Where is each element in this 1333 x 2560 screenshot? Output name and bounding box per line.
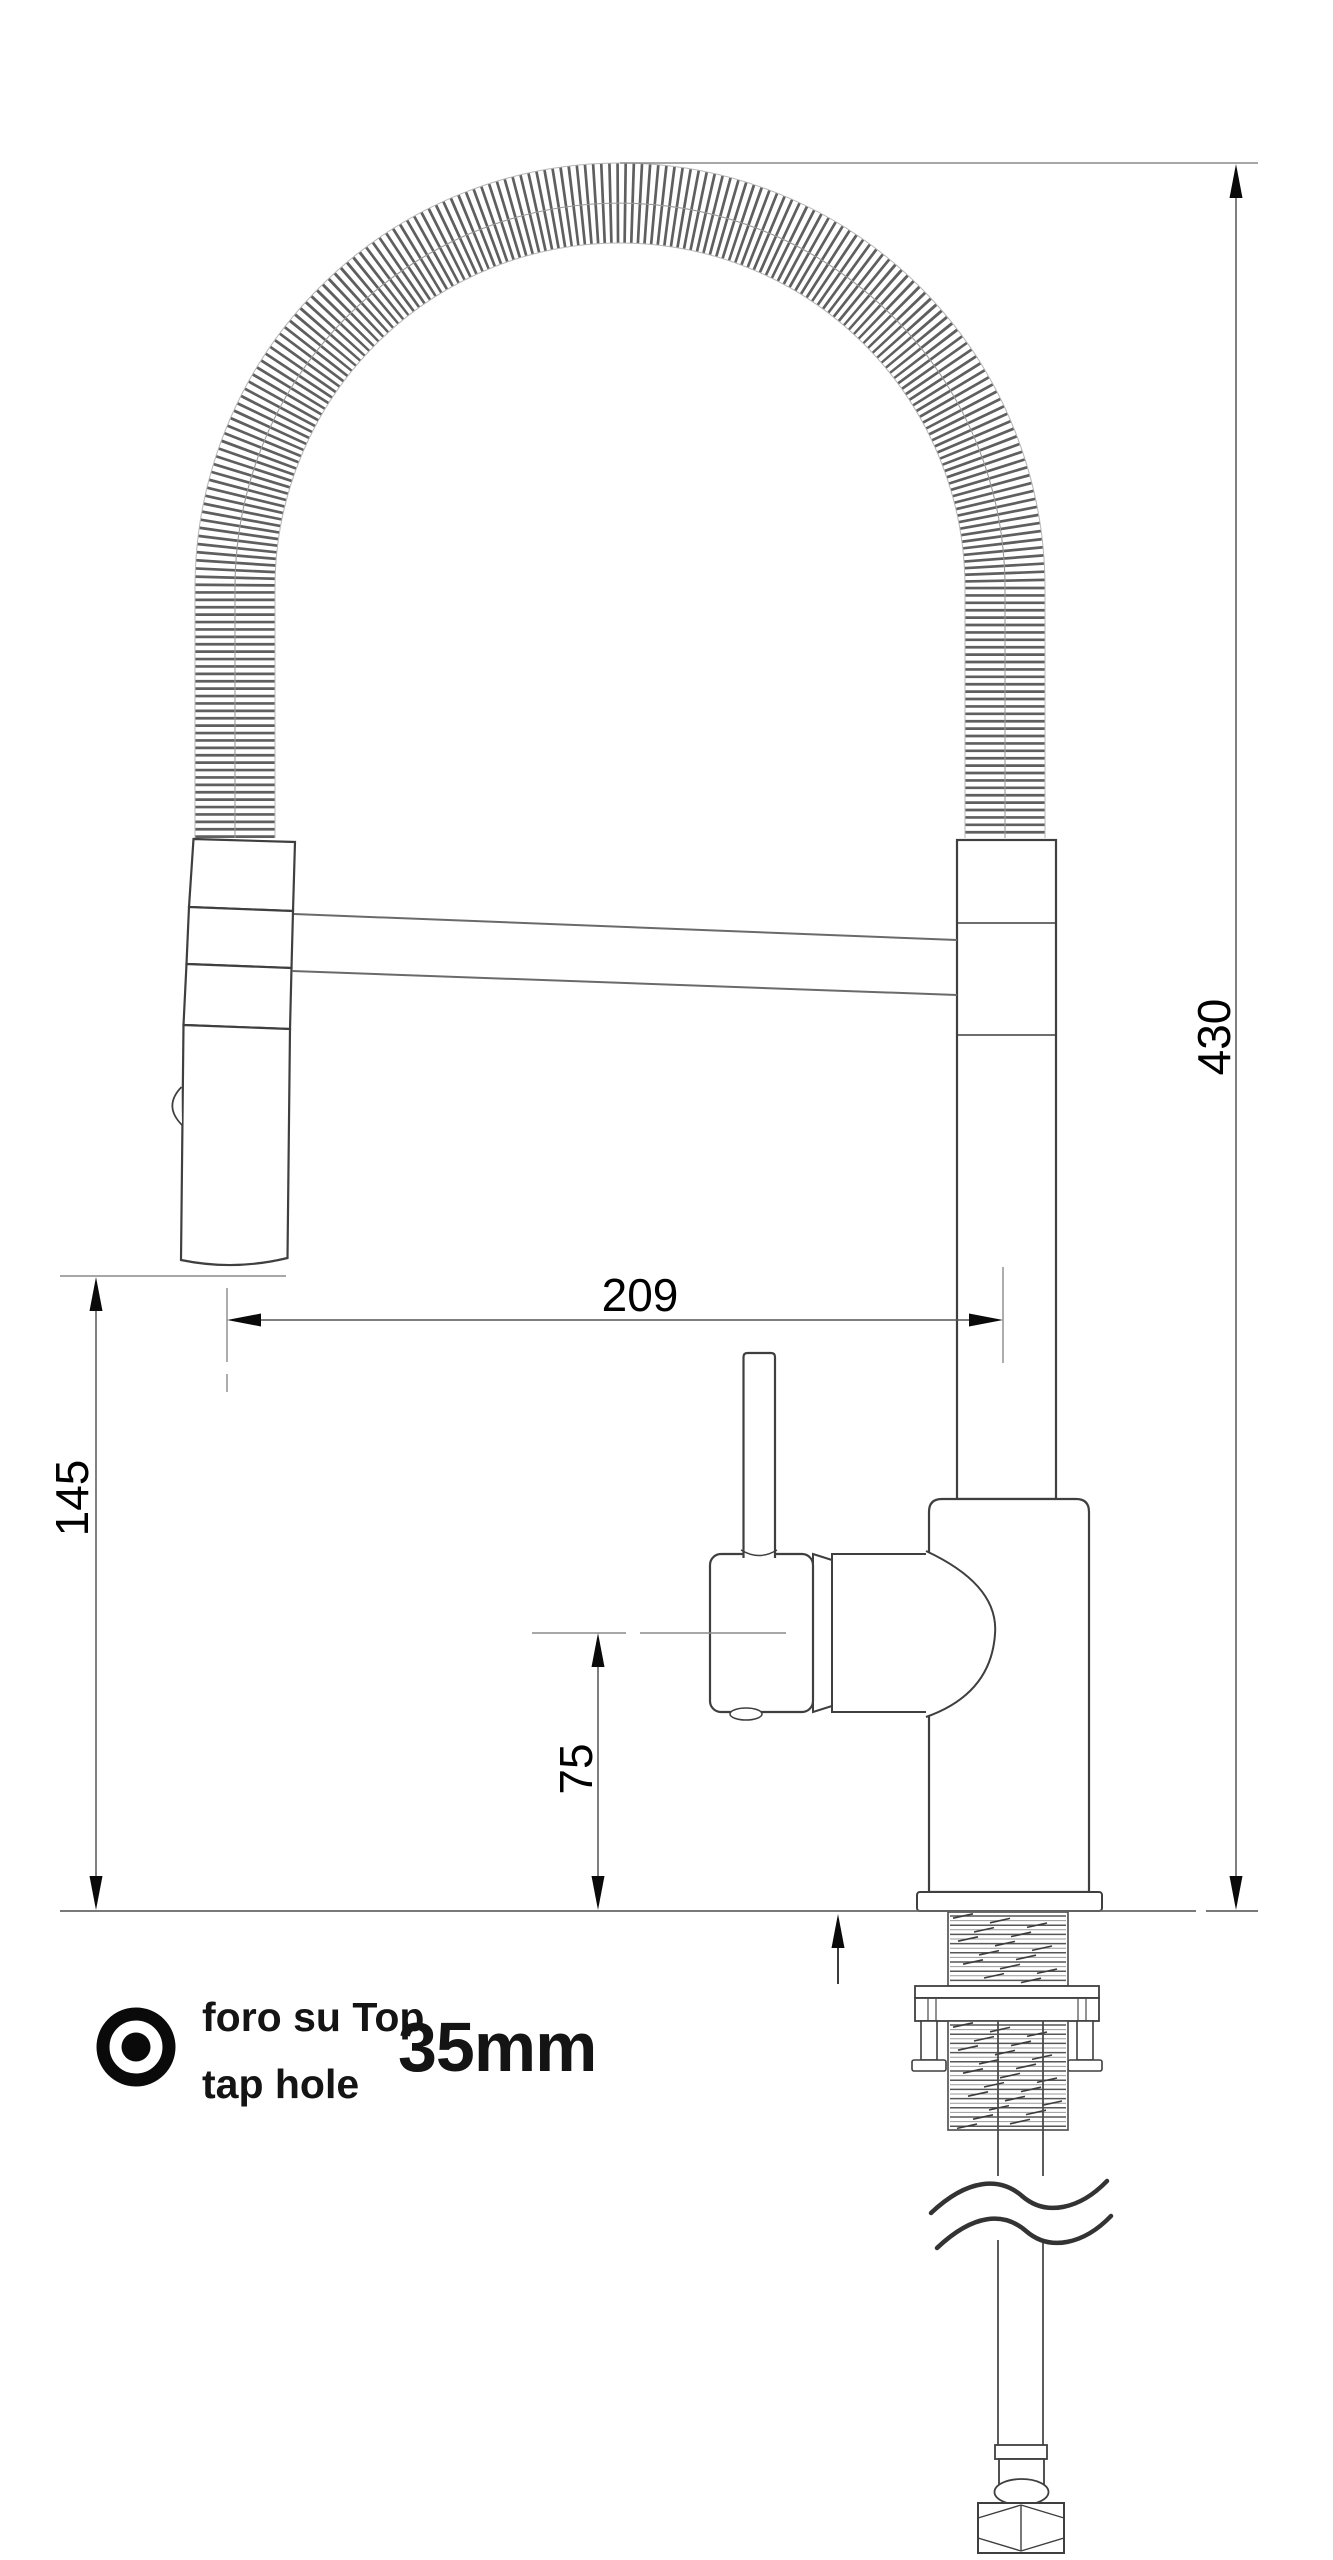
handle-neck bbox=[832, 1554, 929, 1712]
base-flange bbox=[917, 1892, 1102, 1911]
bracket-plate-top bbox=[915, 1986, 1099, 1998]
hose-end-fitting bbox=[978, 2445, 1064, 2553]
counter-pointer-arrow bbox=[832, 1914, 845, 1984]
tap-hole-size: 35mm bbox=[398, 2012, 596, 2082]
dimension-label-overall-height: 430 bbox=[1191, 967, 1237, 1107]
bracket-plate-bottom bbox=[915, 1998, 1099, 2021]
dimension-145 bbox=[90, 1277, 103, 1910]
spray-head bbox=[172, 839, 295, 1265]
handle-joint bbox=[813, 1551, 995, 1717]
handle-assembly bbox=[710, 1353, 813, 1720]
bracket-stud-right bbox=[1077, 2021, 1093, 2060]
spray-head-ring1 bbox=[187, 907, 294, 968]
bullseye-icon bbox=[103, 2014, 169, 2080]
dimension-label-spray-head-height: 145 bbox=[49, 1428, 95, 1568]
tap-hole-note-english: tap hole bbox=[202, 2064, 359, 2105]
housing-outlet bbox=[730, 1708, 762, 1720]
tap-hole-note-italian: foro su Top bbox=[202, 1997, 424, 2038]
threaded-shank-lower bbox=[948, 2021, 1068, 2130]
fitting-collar bbox=[995, 2445, 1047, 2459]
bracket-foot-right bbox=[1068, 2060, 1102, 2071]
spray-head-nut bbox=[189, 839, 295, 911]
lever-handle bbox=[744, 1353, 776, 1558]
docking-bar bbox=[292, 914, 957, 995]
spring-outer-edge bbox=[195, 163, 1045, 838]
bracket-stud-left bbox=[921, 2021, 937, 2060]
bracket-foot-left bbox=[912, 2060, 946, 2071]
fitting-ball bbox=[995, 2479, 1049, 2505]
spray-head-ring2 bbox=[184, 964, 292, 1029]
spray-head-body bbox=[181, 1025, 290, 1265]
dimension-label-body-height: 75 bbox=[553, 1714, 599, 1824]
threaded-shank-upper bbox=[948, 1912, 1068, 1986]
spray-mode-button bbox=[172, 1087, 182, 1125]
faucet-spec-sheet: 430 145 75 209 foro su Top tap hole 35mm bbox=[0, 0, 1333, 2560]
handle-collar bbox=[813, 1554, 832, 1712]
dimension-label-spout-reach: 209 bbox=[560, 1272, 720, 1318]
hose-break-symbol bbox=[931, 2181, 1111, 2248]
spring-centerline bbox=[235, 203, 1005, 838]
spring-coil-turns bbox=[235, 203, 1005, 838]
spout-pipe bbox=[957, 840, 1056, 1499]
spring-hose bbox=[195, 163, 1045, 838]
